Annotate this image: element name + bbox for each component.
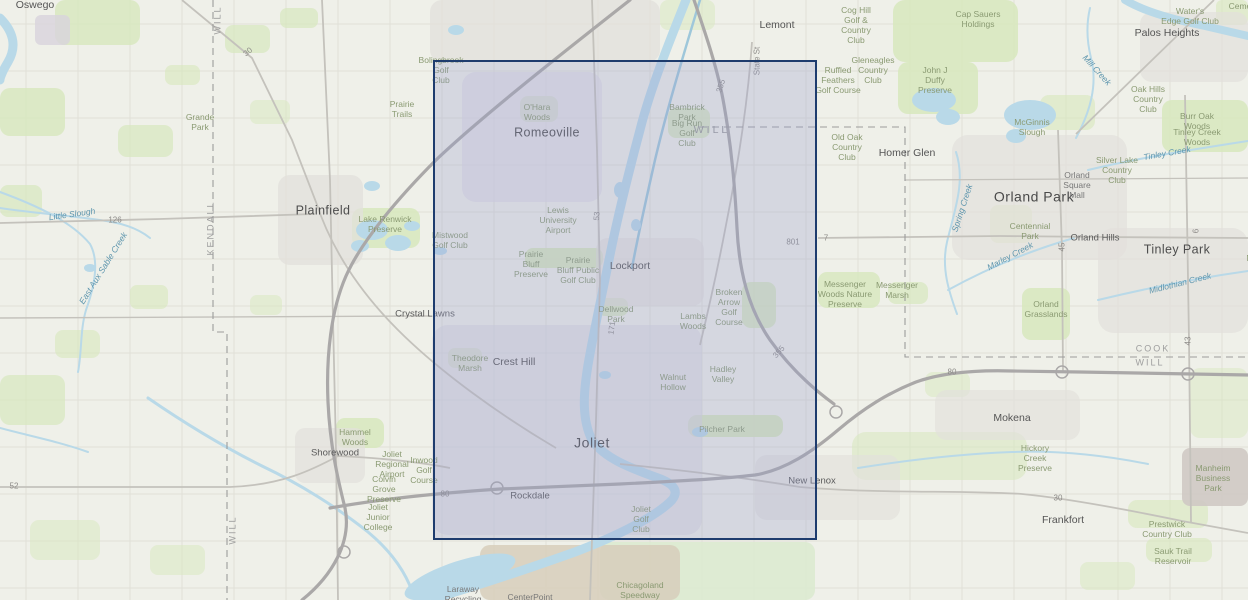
kendall-will-line xyxy=(213,0,227,600)
route59 xyxy=(322,0,338,600)
route126 xyxy=(0,214,314,223)
selection-rectangle[interactable] xyxy=(433,60,817,540)
east-aux-sable-creek xyxy=(0,192,95,372)
route52 xyxy=(0,456,450,487)
map-canvas[interactable]: OswegoPlainfieldRomeovilleLemontPalos He… xyxy=(0,0,1248,600)
